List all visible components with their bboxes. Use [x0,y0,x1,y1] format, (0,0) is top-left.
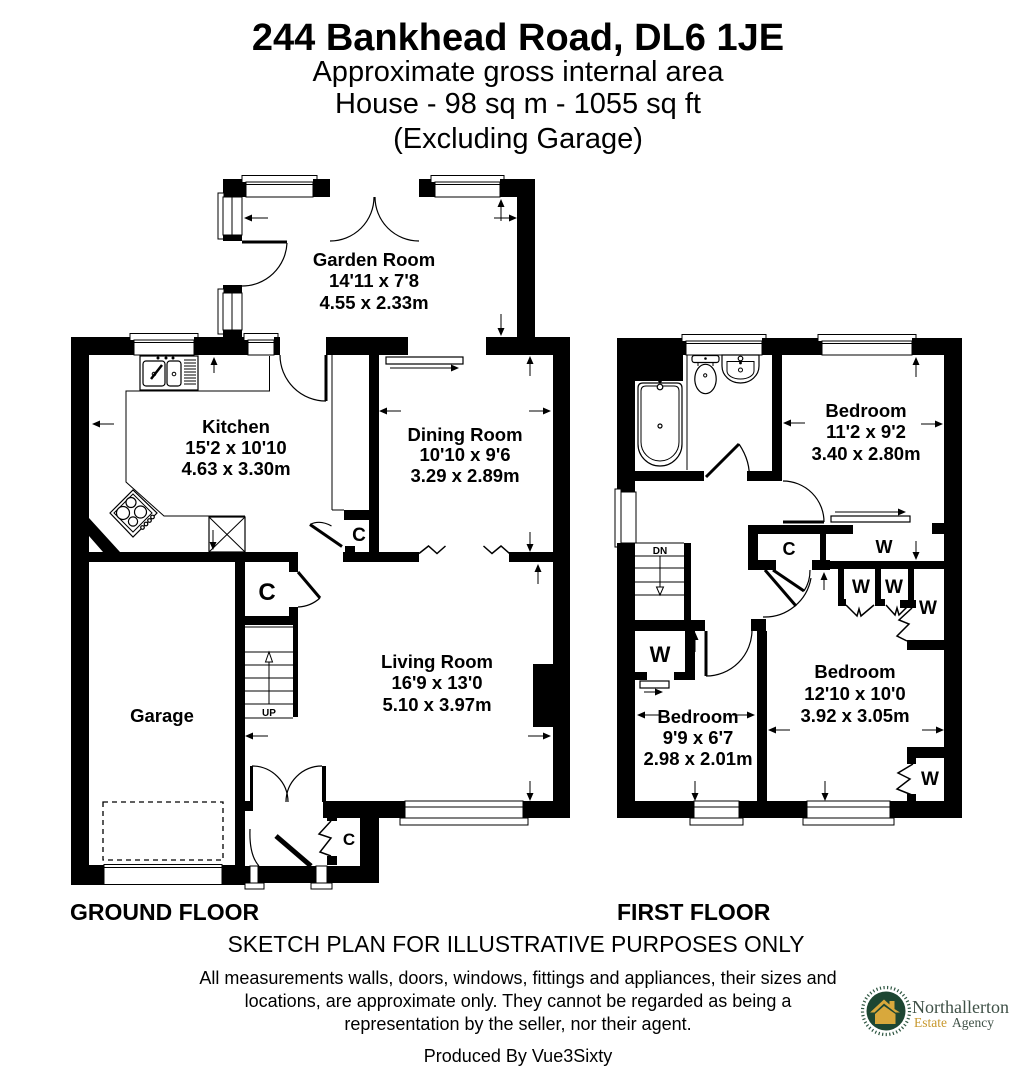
svg-text:Northallerton: Northallerton [912,997,1009,1017]
svg-text:House - 98 sq m - 1055 sq ft: House - 98 sq m - 1055 sq ft [335,88,701,120]
svg-text:All measurements walls, doors,: All measurements walls, doors, windows, … [199,968,836,988]
svg-text:14'11 x 7'8: 14'11 x 7'8 [329,270,419,291]
svg-text:4.63 x 3.30m: 4.63 x 3.30m [181,458,290,479]
svg-text:Bedroom: Bedroom [657,706,738,727]
svg-text:Estate: Estate [914,1015,947,1030]
svg-text:locations, are approximate onl: locations, are approximate only. They ca… [245,991,793,1011]
svg-text:11'2 x 9'2: 11'2 x 9'2 [826,421,906,442]
svg-text:Living Room: Living Room [381,651,493,672]
svg-text:Garage: Garage [130,705,194,726]
svg-text:12'10 x 10'0: 12'10 x 10'0 [804,683,905,704]
svg-text:244 Bankhead Road, DL6 1JE: 244 Bankhead Road, DL6 1JE [252,17,784,59]
svg-text:15'2 x 10'10: 15'2 x 10'10 [185,437,286,458]
svg-text:representation by the seller,: representation by the seller, nor their … [344,1014,691,1034]
svg-text:UP: UP [262,708,276,719]
svg-text:C: C [352,525,366,546]
svg-text:Dining Room: Dining Room [407,424,522,445]
svg-text:C: C [258,579,275,606]
svg-text:Kitchen: Kitchen [202,416,270,437]
svg-text:FIRST FLOOR: FIRST FLOOR [617,899,771,925]
svg-text:Agency: Agency [952,1015,994,1030]
svg-text:W: W [921,769,939,790]
svg-text:SKETCH PLAN FOR ILLUSTRATIVE P: SKETCH PLAN FOR ILLUSTRATIVE PURPOSES ON… [228,931,805,957]
svg-text:3.40 x 2.80m: 3.40 x 2.80m [811,443,920,464]
svg-text:2.98 x 2.01m: 2.98 x 2.01m [643,748,752,769]
svg-text:W: W [650,642,671,667]
svg-text:Produced By Vue3Sixty: Produced By Vue3Sixty [424,1046,612,1066]
svg-text:Bedroom: Bedroom [825,400,906,421]
svg-text:Approximate gross internal are: Approximate gross internal area [312,56,724,88]
svg-text:9'9 x 6'7: 9'9 x 6'7 [663,727,734,748]
svg-text:W: W [876,537,893,557]
svg-text:W: W [919,598,937,619]
svg-text:3.29 x 2.89m: 3.29 x 2.89m [410,465,519,486]
svg-text:W: W [852,577,870,598]
svg-text:3.92 x 3.05m: 3.92 x 3.05m [800,705,909,726]
svg-text:Garden Room: Garden Room [313,249,435,270]
svg-text:Bedroom: Bedroom [814,661,895,682]
svg-text:4.55 x 2.33m: 4.55 x 2.33m [319,292,428,313]
svg-text:5.10 x 3.97m: 5.10 x 3.97m [382,694,491,715]
svg-text:DN: DN [653,546,667,557]
svg-text:C: C [783,539,796,559]
svg-text:16'9 x 13'0: 16'9 x 13'0 [391,672,482,693]
svg-text:W: W [885,577,903,598]
svg-text:C: C [343,830,355,849]
svg-text:10'10 x 9'6: 10'10 x 9'6 [419,444,510,465]
svg-text:GROUND FLOOR: GROUND FLOOR [70,899,259,925]
svg-text:(Excluding Garage): (Excluding Garage) [393,123,643,155]
